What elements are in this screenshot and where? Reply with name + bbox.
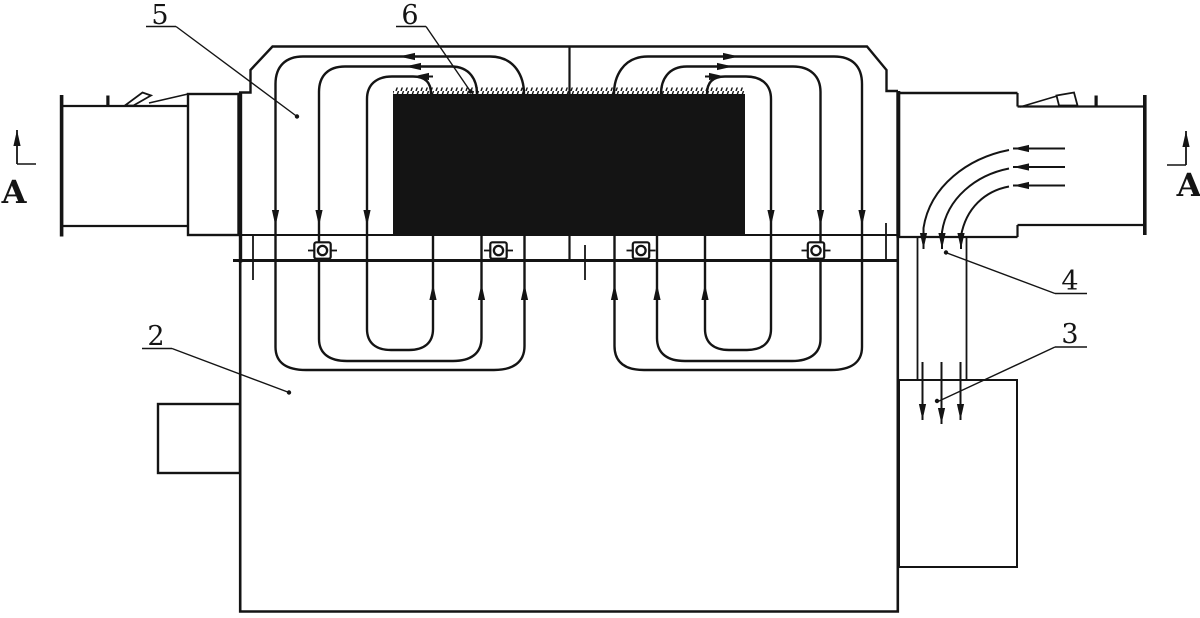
flow-arc-down xyxy=(924,150,1010,249)
right-duct-flow-arrows xyxy=(924,149,1066,250)
flow-arc-down xyxy=(961,187,1009,250)
damper-pin xyxy=(106,96,109,107)
section-label: A xyxy=(1,173,28,211)
left-protrusion-box xyxy=(158,404,240,473)
leader-line xyxy=(426,27,471,92)
left-inlet-duct xyxy=(60,93,239,237)
circulation-fan-icon xyxy=(308,242,337,258)
bed-block xyxy=(393,94,745,235)
leader-line xyxy=(172,349,289,393)
duct-end-cap xyxy=(1143,95,1147,235)
damper-lever xyxy=(1020,96,1057,107)
discharge-box xyxy=(899,380,1017,567)
leader-dot xyxy=(295,114,299,118)
part-number: 3 xyxy=(1061,319,1078,350)
leader-dot xyxy=(468,89,472,93)
damper-blade xyxy=(1057,93,1078,106)
right-inlet-duct xyxy=(1018,93,1147,236)
damper-lever xyxy=(149,94,188,103)
leader-dot xyxy=(935,399,939,403)
section-marker-right: A xyxy=(1167,131,1200,204)
callout-part-5: 5 xyxy=(146,0,299,119)
main-body-outline xyxy=(240,237,898,612)
damper-pin xyxy=(1095,96,1098,107)
part-number: 4 xyxy=(1061,266,1078,297)
duct-flange-box xyxy=(188,94,239,235)
fan-rotor xyxy=(494,246,503,255)
callout-part-4: 4 xyxy=(944,250,1087,297)
section-label: A xyxy=(1176,166,1200,204)
damper-icon xyxy=(106,93,188,107)
chamber-right-wall xyxy=(896,91,900,238)
right-plenum xyxy=(899,93,1018,237)
leader-line xyxy=(947,253,1055,294)
damper-blade xyxy=(125,93,151,106)
leader-line xyxy=(938,347,1055,402)
material-bed xyxy=(393,88,745,236)
bed-top-hatch xyxy=(393,88,745,95)
downcomer-channel xyxy=(918,237,967,424)
circulation-fan-icon xyxy=(627,242,656,258)
leader-dot xyxy=(287,390,291,394)
furnace-airflow-diagram: A A 5 6 2 4 3 xyxy=(0,0,1200,618)
drawing-svg: A A 5 6 2 4 3 xyxy=(0,0,1200,618)
part-number: 2 xyxy=(147,321,164,352)
fan-rotor xyxy=(811,246,820,255)
fan-rotor xyxy=(636,246,645,255)
section-marker-left: A xyxy=(1,130,36,211)
fan-rotor xyxy=(318,246,327,255)
leader-dot xyxy=(944,250,948,254)
duct-end-cap xyxy=(60,95,64,237)
circulation-fan-icon xyxy=(802,242,831,258)
callout-part-2: 2 xyxy=(142,321,291,395)
damper-icon xyxy=(1020,93,1098,108)
callout-part-3: 3 xyxy=(935,319,1087,403)
main-body xyxy=(158,237,898,612)
circulation-fan-icon xyxy=(484,242,513,258)
